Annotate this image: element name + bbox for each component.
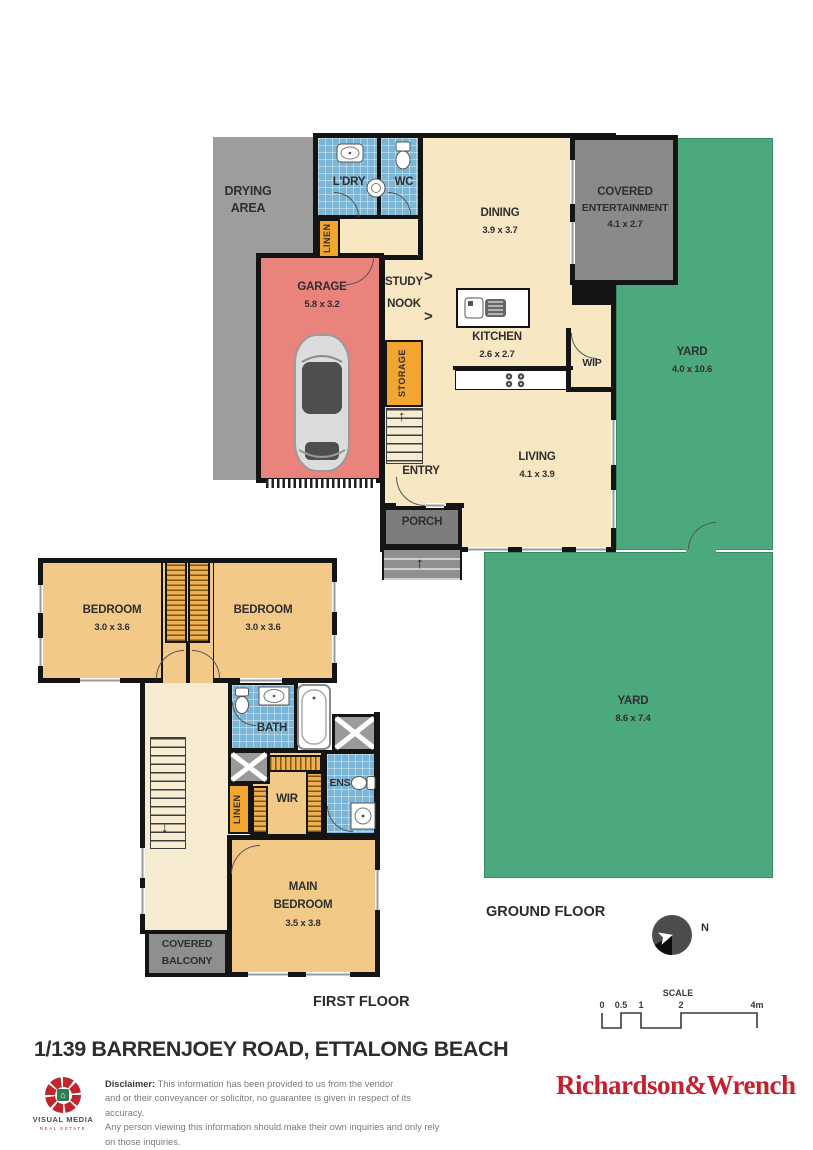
scale-bar bbox=[596, 1011, 766, 1031]
disclaimer-text: Disclaimer: This information has been pr… bbox=[105, 1077, 450, 1149]
logo-house-icon: ⌂ bbox=[57, 1089, 69, 1101]
floorplan-page: DRYING AREA L'DRY WC LINEN GARAGE 5.8 x … bbox=[0, 0, 813, 1150]
yard-back-label: YARD bbox=[618, 695, 649, 707]
wall-bedroom-divider bbox=[186, 641, 190, 683]
car-icon bbox=[291, 332, 353, 474]
washing-machine-icon bbox=[366, 178, 386, 198]
scale-tick-05: 0.5 bbox=[615, 1000, 628, 1010]
kitchen-dims: 2.6 x 2.7 bbox=[479, 349, 514, 360]
north-arrow-icon: ➤ bbox=[650, 913, 696, 957]
bedroom1-window-west2 bbox=[38, 638, 43, 666]
linen-ground-label: LINEN bbox=[322, 223, 332, 254]
wc-toilet-icon bbox=[394, 141, 412, 171]
laundry-label: L'DRY bbox=[333, 176, 366, 188]
garage-dims: 5.8 x 3.2 bbox=[304, 299, 339, 310]
wir-robe-top-icon bbox=[268, 755, 322, 772]
wir-label: WIR bbox=[276, 793, 298, 805]
logo-tagline: REAL ESTATE bbox=[40, 1126, 86, 1131]
living-window-south1 bbox=[468, 547, 508, 552]
living-window-east2 bbox=[611, 490, 616, 528]
main-bedroom-window-south2 bbox=[306, 972, 350, 977]
yard-side-label: YARD bbox=[677, 346, 708, 358]
wall-wip-south bbox=[566, 387, 616, 392]
bathtub-icon bbox=[297, 684, 331, 750]
bedroom2-window-east2 bbox=[332, 635, 337, 663]
cooktop-icon bbox=[501, 372, 533, 388]
wall-entertainment-south bbox=[572, 283, 616, 305]
wir-robe-left-icon bbox=[252, 786, 268, 834]
bedroom2-wardrobe-icon bbox=[188, 561, 210, 643]
wall-ldry-wc bbox=[377, 136, 381, 218]
study-nook-chevron-icon-2: > bbox=[424, 308, 433, 325]
bedroom-2 bbox=[209, 558, 337, 683]
bedroom1-dims: 3.0 x 3.6 bbox=[94, 622, 129, 633]
hall-window-west1 bbox=[140, 848, 145, 878]
entertainment-window-1 bbox=[570, 160, 575, 204]
scale-tick-2: 2 bbox=[678, 1000, 683, 1010]
shower-icon bbox=[332, 714, 378, 752]
stairs-down-arrow-icon: ↓ bbox=[161, 820, 169, 835]
balcony-label2: BALCONY bbox=[162, 955, 213, 967]
ground-floor-label: GROUND FLOOR bbox=[486, 904, 605, 920]
address-title: 1/139 BARRENJOEY ROAD, ETTALONG BEACH bbox=[34, 1037, 508, 1062]
garage-door bbox=[266, 479, 376, 488]
scale-title: SCALE bbox=[663, 988, 694, 998]
main-bedroom-label2: BEDROOM bbox=[274, 899, 333, 911]
bedroom-1 bbox=[38, 558, 166, 683]
bedroom1-window-west1 bbox=[38, 585, 43, 613]
porch-label: PORCH bbox=[402, 516, 443, 528]
bedroom2-label: BEDROOM bbox=[234, 604, 293, 616]
wall-entry-south-1 bbox=[380, 503, 396, 508]
main-bedroom-window-south1 bbox=[248, 972, 288, 977]
linen-first-label: LINEN bbox=[232, 789, 242, 829]
living-window-south2 bbox=[522, 547, 562, 552]
hall-window-west2 bbox=[140, 888, 145, 914]
kitchen-label: KITCHEN bbox=[472, 331, 522, 343]
north-label: N bbox=[701, 922, 709, 934]
drying-area-label2: AREA bbox=[231, 201, 266, 215]
study-nook-label1: STUDY bbox=[385, 276, 423, 288]
disclaimer-line-2: and or their conveyancer or solicitor, n… bbox=[105, 1093, 411, 1117]
bath-label: BATH bbox=[257, 722, 287, 734]
bedroom1-wardrobe-icon bbox=[165, 561, 187, 643]
disclaimer-line-3: Any person viewing this information shou… bbox=[105, 1122, 439, 1146]
main-bedroom-label1: MAIN bbox=[289, 881, 318, 893]
logo-name: VISUAL MEDIA bbox=[33, 1115, 94, 1124]
visual-media-logo-icon: ⌂ bbox=[45, 1077, 81, 1113]
bedroom2-dims: 3.0 x 3.6 bbox=[245, 622, 280, 633]
entry-window bbox=[426, 503, 444, 508]
bedroom1-label: BEDROOM bbox=[83, 604, 142, 616]
porch-arrow-icon: ↑ bbox=[416, 556, 424, 571]
yard-gate-opening bbox=[686, 549, 716, 553]
ens-toilet-icon bbox=[351, 775, 377, 791]
living-dims: 4.1 x 3.9 bbox=[519, 469, 554, 480]
entertainment-label1: COVERED bbox=[597, 186, 652, 198]
logo-inner-circle: ⌂ bbox=[55, 1087, 72, 1104]
study-nook-label2: NOOK bbox=[387, 298, 421, 310]
living-label: LIVING bbox=[518, 451, 555, 463]
entertainment-window-2 bbox=[570, 222, 575, 264]
entertainment-dims: 4.1 x 2.7 bbox=[607, 219, 642, 230]
ens-label: ENS bbox=[330, 777, 351, 789]
agency-brand: Richardson&Wrench bbox=[556, 1070, 796, 1101]
yard-side-dims: 4.0 x 10.6 bbox=[672, 364, 712, 375]
ens-sink-icon bbox=[350, 802, 376, 830]
living-window-east1 bbox=[611, 420, 616, 465]
kitchen-sink-icon bbox=[464, 297, 508, 319]
laundry-tub-icon bbox=[336, 143, 364, 163]
first-floor-label: FIRST FLOOR bbox=[313, 994, 410, 1010]
storage-label: STORAGE bbox=[397, 348, 407, 399]
bedroom1-window-south bbox=[80, 678, 120, 683]
dining-label: DINING bbox=[480, 207, 519, 219]
living-window-south3 bbox=[576, 547, 606, 552]
bedroom2-window-east1 bbox=[332, 582, 337, 612]
entry-label: ENTRY bbox=[402, 465, 440, 477]
wc-label: WC bbox=[395, 176, 414, 188]
study-nook-chevron-icon: > bbox=[424, 268, 433, 285]
entertainment-label2: ENTERTAINMENT bbox=[582, 202, 668, 214]
dining-dims: 3.9 x 3.7 bbox=[482, 225, 517, 236]
wall-wip-west bbox=[566, 328, 571, 392]
drying-area-label: DRYING bbox=[225, 184, 272, 198]
bath-sink-icon bbox=[258, 686, 290, 706]
scale-tick-1: 1 bbox=[638, 1000, 643, 1010]
main-bedroom-window-east bbox=[375, 870, 380, 910]
disclaimer-line-1: This information has been provided to us… bbox=[158, 1079, 394, 1089]
bath-toilet-icon bbox=[234, 687, 250, 715]
bedroom2-window-south bbox=[240, 678, 282, 683]
wip-label: WIP bbox=[582, 357, 601, 369]
disclaimer-bold: Disclaimer: bbox=[105, 1079, 155, 1089]
wall-kitchen-bench bbox=[453, 366, 573, 370]
wir-robe-right-icon bbox=[306, 772, 323, 834]
scale-tick-4m: 4m bbox=[750, 1000, 763, 1010]
scale-tick-0: 0 bbox=[599, 1000, 604, 1010]
shower-icon-2 bbox=[228, 750, 270, 784]
balcony-label1: COVERED bbox=[162, 938, 213, 950]
stairs-up-arrow-icon: ↑ bbox=[398, 409, 406, 424]
main-bedroom-dims: 3.5 x 3.8 bbox=[285, 918, 320, 929]
garage-label: GARAGE bbox=[297, 281, 346, 293]
wall-entry-south-2 bbox=[446, 503, 464, 508]
yard-back-dims: 8.6 x 7.4 bbox=[615, 713, 650, 724]
